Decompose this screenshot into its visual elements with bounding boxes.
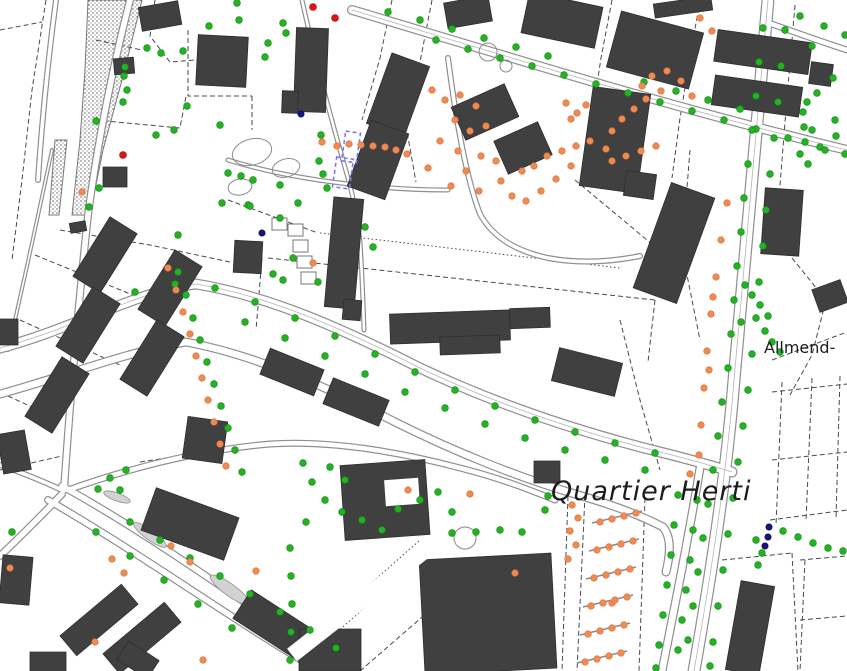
tree-dot-green [289, 601, 296, 608]
tree-dot-green [295, 200, 302, 207]
tree-dot-green [96, 185, 103, 192]
tree-dot-orange [565, 556, 572, 563]
tree-dot-orange [606, 544, 613, 551]
tree-dot-orange [621, 622, 628, 629]
tree-dot-green [725, 531, 732, 538]
tree-dot-green [212, 285, 219, 292]
tree-dot-green [280, 277, 287, 284]
tree-dot-green [753, 315, 760, 322]
tree-dot-green [742, 282, 749, 289]
tree-dot-orange [531, 163, 538, 170]
tree-dot-green [132, 289, 139, 296]
tree-dot-orange [405, 487, 412, 494]
tree-dot-green [324, 185, 331, 192]
tree-dot-green [204, 359, 211, 366]
road-surface [0, 494, 62, 556]
parcel-boundary [0, 22, 42, 30]
tree-dot-green [316, 158, 323, 165]
tree-dot-green [452, 387, 459, 394]
tree-dot-green [218, 403, 225, 410]
tree-dot-green [190, 315, 197, 322]
parcel-boundary [648, 300, 655, 362]
point-dot-red [332, 15, 339, 22]
tree-dot-orange [425, 165, 432, 172]
point-dot-red [120, 152, 127, 159]
tree-dot-green [625, 90, 632, 97]
tree-dot-green [229, 625, 236, 632]
tree-dot-green [690, 603, 697, 610]
tree-dot-orange [606, 653, 613, 660]
tree-dot-orange [588, 603, 595, 610]
tree-dot-green [93, 529, 100, 536]
tree-dot-orange [467, 128, 474, 135]
tree-dot-green [664, 582, 671, 589]
tree-dot-green [332, 333, 339, 340]
tree-dot-green [417, 17, 424, 24]
building-footprint [440, 335, 501, 355]
tree-dot-green [519, 529, 526, 536]
tree-dot-orange [187, 559, 194, 566]
building-footprint [260, 348, 324, 396]
tree-dot-green [197, 337, 204, 344]
tree-dot-orange [697, 15, 704, 22]
tree-dot-orange [519, 168, 526, 175]
tree-dot-green [756, 59, 763, 66]
tree-dot-green [127, 519, 134, 526]
small-outbuilding [288, 224, 303, 236]
tree-dot-green [825, 545, 832, 552]
parcel-boundary [562, 496, 568, 671]
tree-dot-green [395, 506, 402, 513]
point-dot-red [310, 4, 317, 11]
tree-dot-green [307, 627, 314, 634]
tree-dot-green [720, 567, 727, 574]
building-footprint [30, 652, 66, 671]
tree-dot-orange [467, 491, 474, 498]
tree-dot-orange [696, 452, 703, 459]
tree-dot-green [675, 647, 682, 654]
tree-dot-green [679, 617, 686, 624]
small-outbuilding [293, 240, 308, 252]
tree-dot-green [288, 573, 295, 580]
small-outbuilding [301, 272, 316, 284]
tree-dot-green [797, 13, 804, 20]
tree-dot-green [180, 48, 187, 55]
tree-dot-green [195, 601, 202, 608]
tree-dot-green [277, 215, 284, 222]
tree-dot-green [449, 530, 456, 537]
tree-dot-green [689, 108, 696, 115]
tree-dot-orange [448, 183, 455, 190]
point-dot-navy [259, 230, 265, 236]
tree-dot-orange [404, 151, 411, 158]
point-dot-navy [766, 524, 772, 530]
tree-dot-green [545, 53, 552, 60]
tree-dot-orange [193, 353, 200, 360]
street-label-allmend: Allmend- [764, 338, 835, 357]
tree-dot-orange [173, 287, 180, 294]
tree-dot-orange [568, 116, 575, 123]
parcel-boundary [639, 498, 645, 671]
tree-dot-orange [200, 657, 207, 664]
tree-dot-green [449, 26, 456, 33]
tree-dot-green [287, 545, 294, 552]
tree-dot-orange [708, 311, 715, 318]
tree-dot-green [372, 351, 379, 358]
tree-dot-green [265, 40, 272, 47]
tree-dot-orange [493, 158, 500, 165]
parcel-boundary [790, 258, 826, 395]
tree-dot-green [778, 63, 785, 70]
tree-dot-green [287, 657, 294, 664]
tree-dot-orange [678, 78, 685, 85]
parcel-boundary [772, 452, 847, 460]
building-footprint [25, 357, 89, 433]
tree-dot-green [219, 200, 226, 207]
tree-dot-green [247, 203, 254, 210]
tree-dot-green [833, 133, 840, 140]
tree-dot-orange [724, 200, 731, 207]
tree-dot-green [715, 603, 722, 610]
tree-dot-green [562, 447, 569, 454]
parcel-boundary [792, 553, 798, 671]
tree-dot-orange [370, 143, 377, 150]
tree-dot-green [785, 135, 792, 142]
tree-dot-green [144, 45, 151, 52]
tree-dot-orange [609, 158, 616, 165]
tree-dot-orange [319, 139, 326, 146]
tree-dot-orange [718, 237, 725, 244]
tree-dot-green [417, 497, 424, 504]
tree-dot-green [685, 637, 692, 644]
tree-dot-green [158, 50, 165, 57]
tree-dot-green [671, 522, 678, 529]
tree-dot-orange [583, 102, 590, 109]
tree-dot-green [262, 54, 269, 61]
building-footprint [0, 319, 18, 345]
tree-dot-green [362, 371, 369, 378]
tree-dot-green [532, 417, 539, 424]
tree-dot-orange [664, 68, 671, 75]
tree-dot-green [738, 319, 745, 326]
tree-dot-orange [713, 274, 720, 281]
tree-dot-orange [615, 569, 622, 576]
tree-dot-green [753, 537, 760, 544]
district-label: Quartier Herti [551, 476, 752, 507]
parcel-boundary [800, 556, 847, 560]
tree-dot-orange [217, 441, 224, 448]
tree-dot-green [238, 173, 245, 180]
tree-dot-green [171, 127, 178, 134]
tree-dot-green [760, 243, 767, 250]
building-footprint [633, 183, 715, 304]
tree-dot-orange [612, 597, 619, 604]
tree-dot-orange [623, 153, 630, 160]
tree-dot-green [184, 103, 191, 110]
tree-dot-green [247, 591, 254, 598]
tree-dot-green [513, 44, 520, 51]
tree-dot-green [473, 529, 480, 536]
tree-dot-green [379, 527, 386, 534]
tree-dot-orange [573, 143, 580, 150]
tree-dot-green [482, 421, 489, 428]
tree-dot-orange [643, 96, 650, 103]
tree-dot-green [497, 527, 504, 534]
tree-dot-green [442, 405, 449, 412]
tree-dot-green [333, 645, 340, 652]
tree-dot-green [123, 467, 130, 474]
tree-dot-green [762, 328, 769, 335]
building-footprint [141, 488, 239, 560]
building-footprint [510, 307, 551, 328]
building-footprint [138, 1, 182, 32]
tree-dot-green [242, 319, 249, 326]
tree-dot-green [277, 182, 284, 189]
tree-dot-green [481, 35, 488, 42]
tree-dot-orange [476, 188, 483, 195]
tree-dot-orange [429, 87, 436, 94]
building-footprint [342, 299, 362, 320]
tree-dot-orange [553, 176, 560, 183]
tree-dot-orange [658, 88, 665, 95]
tree-dot-green [687, 557, 694, 564]
tree-dot-green [315, 279, 322, 286]
path-corridor [292, 545, 432, 655]
tree-dot-green [782, 27, 789, 34]
tree-dot-orange [597, 519, 604, 526]
tree-dot-green [572, 429, 579, 436]
tree-dot-green [320, 171, 327, 178]
tree-dot-orange [563, 100, 570, 107]
tree-dot-orange [575, 515, 582, 522]
tree-dot-green [745, 387, 752, 394]
tree-dot-green [322, 497, 329, 504]
tree-dot-orange [473, 103, 480, 110]
tree-dot-green [9, 529, 16, 536]
tree-dot-orange [180, 309, 187, 316]
tree-dot-orange [310, 260, 317, 267]
tree-dot-green [561, 72, 568, 79]
tree-dot-green [359, 517, 366, 524]
tree-dot-orange [509, 193, 516, 200]
tree-dot-orange [168, 543, 175, 550]
tree-dot-green [780, 528, 787, 535]
tree-dot-green [795, 534, 802, 541]
building-footprint [103, 167, 127, 187]
tree-dot-green [362, 224, 369, 231]
tree-dot-green [657, 99, 664, 106]
tree-dot-green [206, 23, 213, 30]
building-footprint [551, 348, 622, 397]
tree-dot-green [385, 9, 392, 16]
tree-dot-orange [630, 538, 637, 545]
tree-dot-green [804, 99, 811, 106]
tree-dot-green [327, 464, 334, 471]
tree-dot-green [121, 73, 128, 80]
tree-dot-orange [567, 528, 574, 535]
tree-dot-green [339, 509, 346, 516]
tree-dot-green [719, 399, 726, 406]
tree-dot-green [288, 629, 295, 636]
tree-dot-green [700, 535, 707, 542]
tree-dot-orange [437, 138, 444, 145]
map-canvas[interactable]: Quartier Herti Allmend- [0, 0, 847, 671]
tree-dot-green [740, 423, 747, 430]
tree-dot-green [775, 99, 782, 106]
tree-dot-green [107, 475, 114, 482]
tree-dot-orange [600, 600, 607, 607]
tree-dot-orange [582, 659, 589, 666]
tree-dot-green [800, 109, 807, 116]
tree-dot-green [760, 25, 767, 32]
tree-dot-green [602, 457, 609, 464]
tree-dot-green [612, 440, 619, 447]
tree-dot-green [842, 151, 847, 158]
tree-dot-green [809, 127, 816, 134]
tree-dot-green [250, 177, 257, 184]
tree-dot-orange [79, 189, 86, 196]
tree-dot-orange [512, 570, 519, 577]
tree-dot-green [86, 204, 93, 211]
tree-dot-orange [706, 367, 713, 374]
tree-dot-green [277, 609, 284, 616]
tree-dot-green [756, 279, 763, 286]
tree-dot-orange [574, 110, 581, 117]
tree-dot-green [721, 117, 728, 124]
tree-dot-green [303, 519, 310, 526]
tree-dot-green [728, 331, 735, 338]
tree-dot-orange [346, 141, 353, 148]
tree-dot-green [127, 553, 134, 560]
tree-dot-green [725, 365, 732, 372]
tree-dot-green [282, 335, 289, 342]
tree-dot-green [593, 81, 600, 88]
tree-dot-green [161, 577, 168, 584]
tree-dot-green [809, 43, 816, 50]
tree-dot-green [370, 244, 377, 251]
plaza-circle [454, 527, 476, 549]
tree-dot-green [497, 55, 504, 62]
tree-dot-orange [109, 556, 116, 563]
tree-dot-orange [609, 516, 616, 523]
tree-dot-orange [587, 138, 594, 145]
map-svg[interactable]: Quartier Herti Allmend- [0, 0, 847, 671]
tree-dot-green [234, 0, 241, 6]
tree-dot-orange [618, 650, 625, 657]
tree-dot-orange [710, 294, 717, 301]
tree-dot-green [759, 550, 766, 557]
parcel-boundary [770, 510, 847, 520]
courtyard [384, 478, 420, 506]
tree-dot-green [642, 467, 649, 474]
tree-dot-green [309, 479, 316, 486]
point-dot-navy [765, 534, 771, 540]
tree-dot-green [124, 87, 131, 94]
tree-dot-green [832, 117, 839, 124]
tree-dot-orange [603, 572, 610, 579]
building-footprint [182, 416, 227, 463]
tree-dot-green [749, 351, 756, 358]
building-footprint [0, 430, 31, 474]
tree-dot-orange [92, 639, 99, 646]
tree-dot-orange [452, 117, 459, 124]
tree-dot-green [283, 30, 290, 37]
tree-dot-green [175, 232, 182, 239]
tree-dot-green [153, 132, 160, 139]
building-footprint [419, 553, 557, 671]
tree-dot-green [529, 63, 536, 70]
building-footprint [521, 0, 603, 48]
tree-dot-green [232, 447, 239, 454]
tree-dot-green [705, 97, 712, 104]
tree-dot-green [734, 263, 741, 270]
tree-dot-green [322, 353, 329, 360]
point-dot-navy [762, 543, 768, 549]
tree-dot-green [435, 489, 442, 496]
tree-dot-orange [199, 375, 206, 382]
tree-dot-green [95, 486, 102, 493]
tree-dot-green [542, 507, 549, 514]
tree-dot-green [656, 642, 663, 649]
tree-dot-green [765, 313, 772, 320]
tree-dot-orange [205, 397, 212, 404]
tree-dot-green [252, 299, 259, 306]
tree-dot-orange [573, 542, 580, 549]
tree-dot-orange [698, 422, 705, 429]
tree-dot-orange [382, 144, 389, 151]
tree-dot-orange [638, 148, 645, 155]
parcel-boundary [806, 378, 812, 522]
tree-dot-green [738, 229, 745, 236]
tree-dot-green [217, 122, 224, 129]
tree-dot-green [280, 20, 287, 27]
parcel-boundary [800, 616, 847, 620]
tree-dot-orange [591, 575, 598, 582]
tree-dot-green [731, 297, 738, 304]
building-footprint [0, 555, 33, 605]
parcel-boundary [800, 560, 805, 671]
tree-dot-orange [597, 628, 604, 635]
tree-dot-green [175, 269, 182, 276]
tree-dot-orange [585, 631, 592, 638]
building-footprint [444, 0, 493, 29]
parcel-boundary [772, 384, 847, 392]
point-dot-navy [298, 111, 304, 117]
tree-dot-orange [457, 92, 464, 99]
building-footprint [323, 378, 389, 426]
tree-dot-green [211, 381, 218, 388]
tree-dot-orange [653, 143, 660, 150]
tree-dot-orange [704, 348, 711, 355]
tree-dot-green [157, 537, 164, 544]
tree-dot-green [707, 663, 714, 670]
tree-dot-green [735, 459, 742, 466]
tree-dot-orange [455, 148, 462, 155]
tree-dot-green [830, 75, 837, 82]
tree-dot-green [757, 302, 764, 309]
tree-dot-green [342, 477, 349, 484]
parcel-boundary [776, 382, 782, 525]
tree-dot-green [673, 88, 680, 95]
tree-dot-green [797, 151, 804, 158]
road-surface [68, 443, 555, 500]
tree-dot-green [652, 450, 659, 457]
tree-dot-green [465, 46, 472, 53]
tree-dot-green [753, 93, 760, 100]
tree-dot-green [745, 161, 752, 168]
tree-dot-orange [621, 513, 628, 520]
tree-dot-green [292, 315, 299, 322]
